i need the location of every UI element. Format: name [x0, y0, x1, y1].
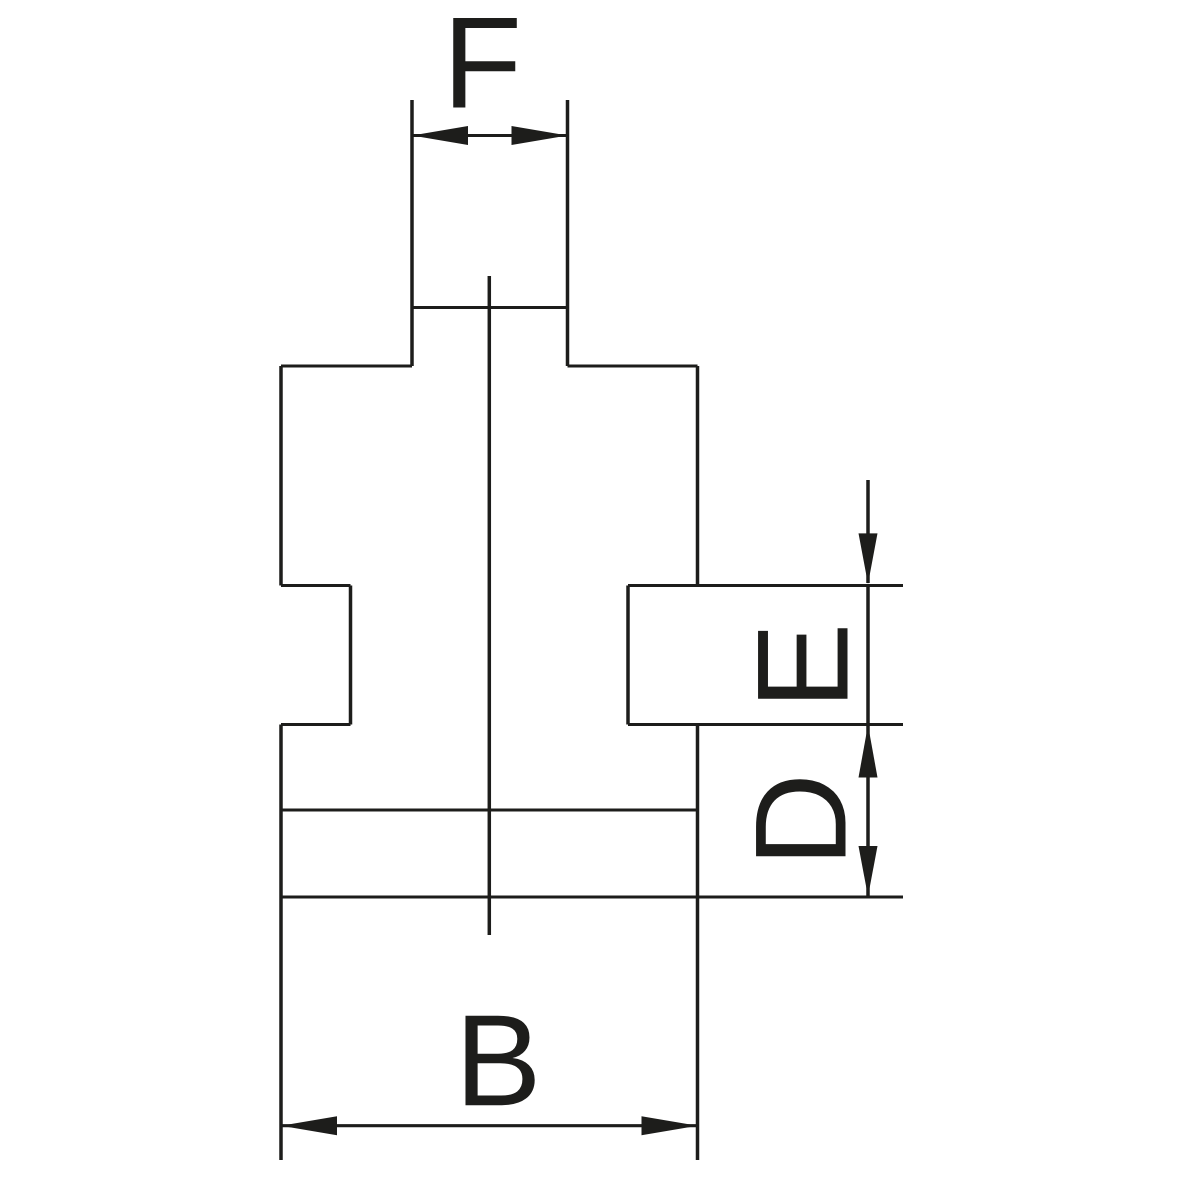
svg-text:F: F [443, 0, 522, 136]
svg-text:B: B [455, 987, 542, 1133]
svg-text:D: D [728, 773, 874, 867]
svg-text:E: E [730, 623, 876, 710]
